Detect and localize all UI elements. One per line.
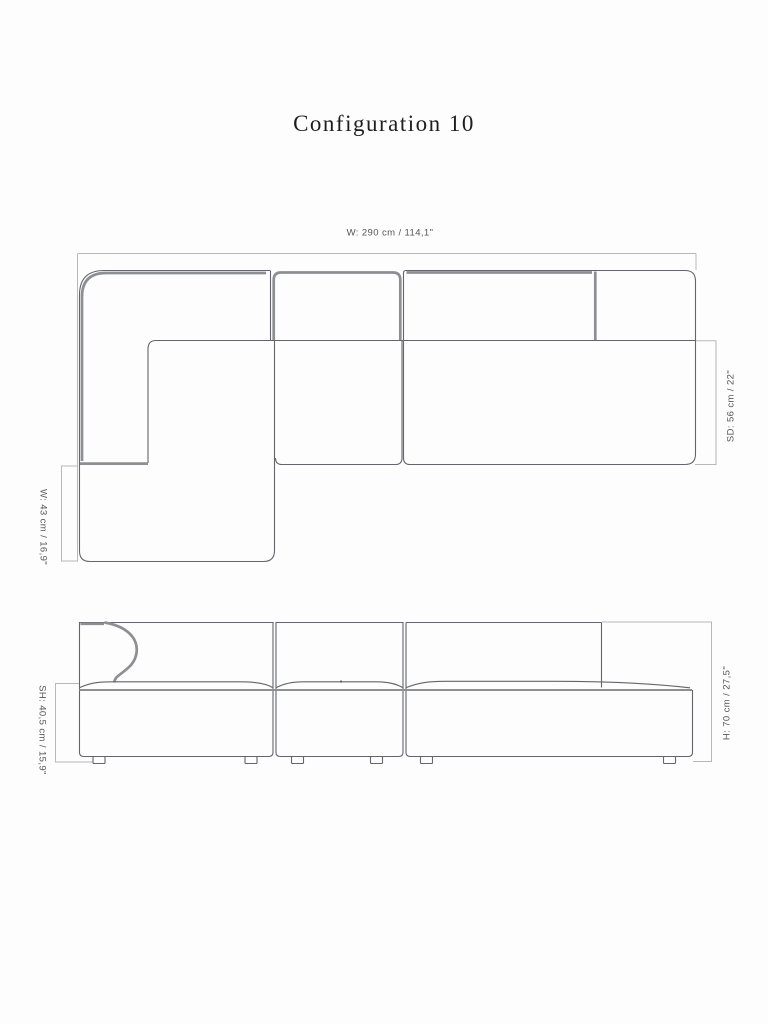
front-view bbox=[56, 622, 712, 764]
seat-height-bracket bbox=[56, 684, 94, 763]
total-height-bracket bbox=[602, 622, 712, 762]
front-view-dimension-lines bbox=[56, 622, 712, 762]
cushion-lines bbox=[80, 680, 690, 687]
corner-chaise-outline bbox=[80, 271, 275, 562]
sofa-feet bbox=[93, 757, 676, 764]
top-view-dimension-lines bbox=[62, 254, 717, 562]
corner-backrest-profile bbox=[105, 623, 137, 683]
top-view bbox=[62, 254, 717, 562]
right-module-outline bbox=[404, 271, 696, 465]
seat-depth-bracket bbox=[695, 341, 716, 465]
sofa-technical-drawing bbox=[0, 0, 768, 1024]
label-seat-depth: SD: 56 cm / 22" bbox=[726, 370, 737, 442]
label-seat-height: SH: 40,5 cm / 15,9" bbox=[37, 685, 48, 775]
middle-module-seat bbox=[276, 341, 403, 465]
configuration-sheet: Configuration 10 bbox=[0, 0, 768, 1024]
top-view-backrest-piping bbox=[80, 272, 595, 464]
label-total-width: W: 290 cm / 114,1" bbox=[347, 228, 434, 239]
label-total-height: H: 70 cm / 27,5" bbox=[722, 666, 733, 740]
chaise-width-bracket bbox=[62, 466, 79, 561]
label-chaise-extension: W: 43 cm / 16,9" bbox=[38, 489, 49, 565]
